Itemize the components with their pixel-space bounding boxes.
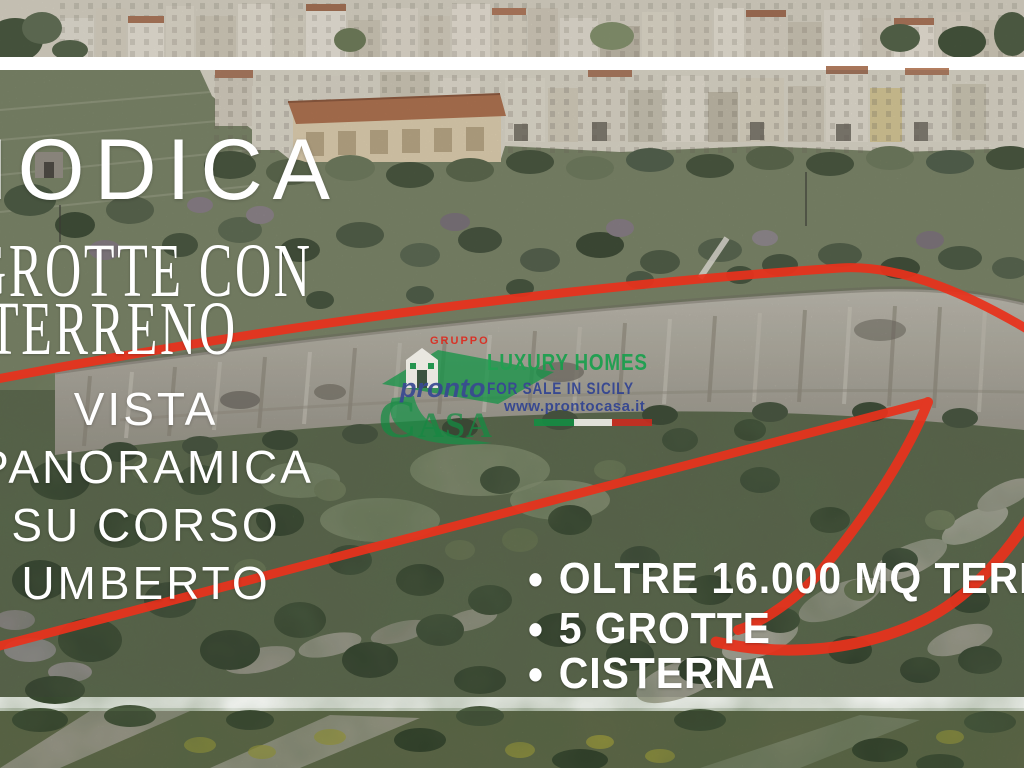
bottom-divider-band [0,697,1024,711]
side-caption-line: SU CORSO [0,496,330,554]
feature-text: CISTERNA [559,649,776,699]
side-caption-line: VISTA [0,380,330,438]
top-divider-band [0,57,1024,70]
side-caption: VISTA PANORAMICA SU CORSO UMBERTO [0,380,330,612]
feature-item: • CISTERNA [528,647,775,701]
side-caption-line: PANORAMICA [0,438,330,496]
property-listing-photo: MODICA GROTTE CON TERRENO VISTA PANORAMI… [0,0,1024,768]
city-title: MODICA [0,127,340,213]
bullet-icon: • [528,552,544,606]
bottom-terrain-strip [0,705,1024,768]
subtitle-line-2: TERRENO [0,291,238,367]
side-caption-line: UMBERTO [0,554,330,612]
bullet-icon: • [528,647,544,701]
feature-item: • OLTRE 16.000 MQ TERRENO [528,552,1024,606]
feature-text: OLTRE 16.000 MQ TERRENO [559,554,1024,604]
top-town-strip [0,0,1024,62]
